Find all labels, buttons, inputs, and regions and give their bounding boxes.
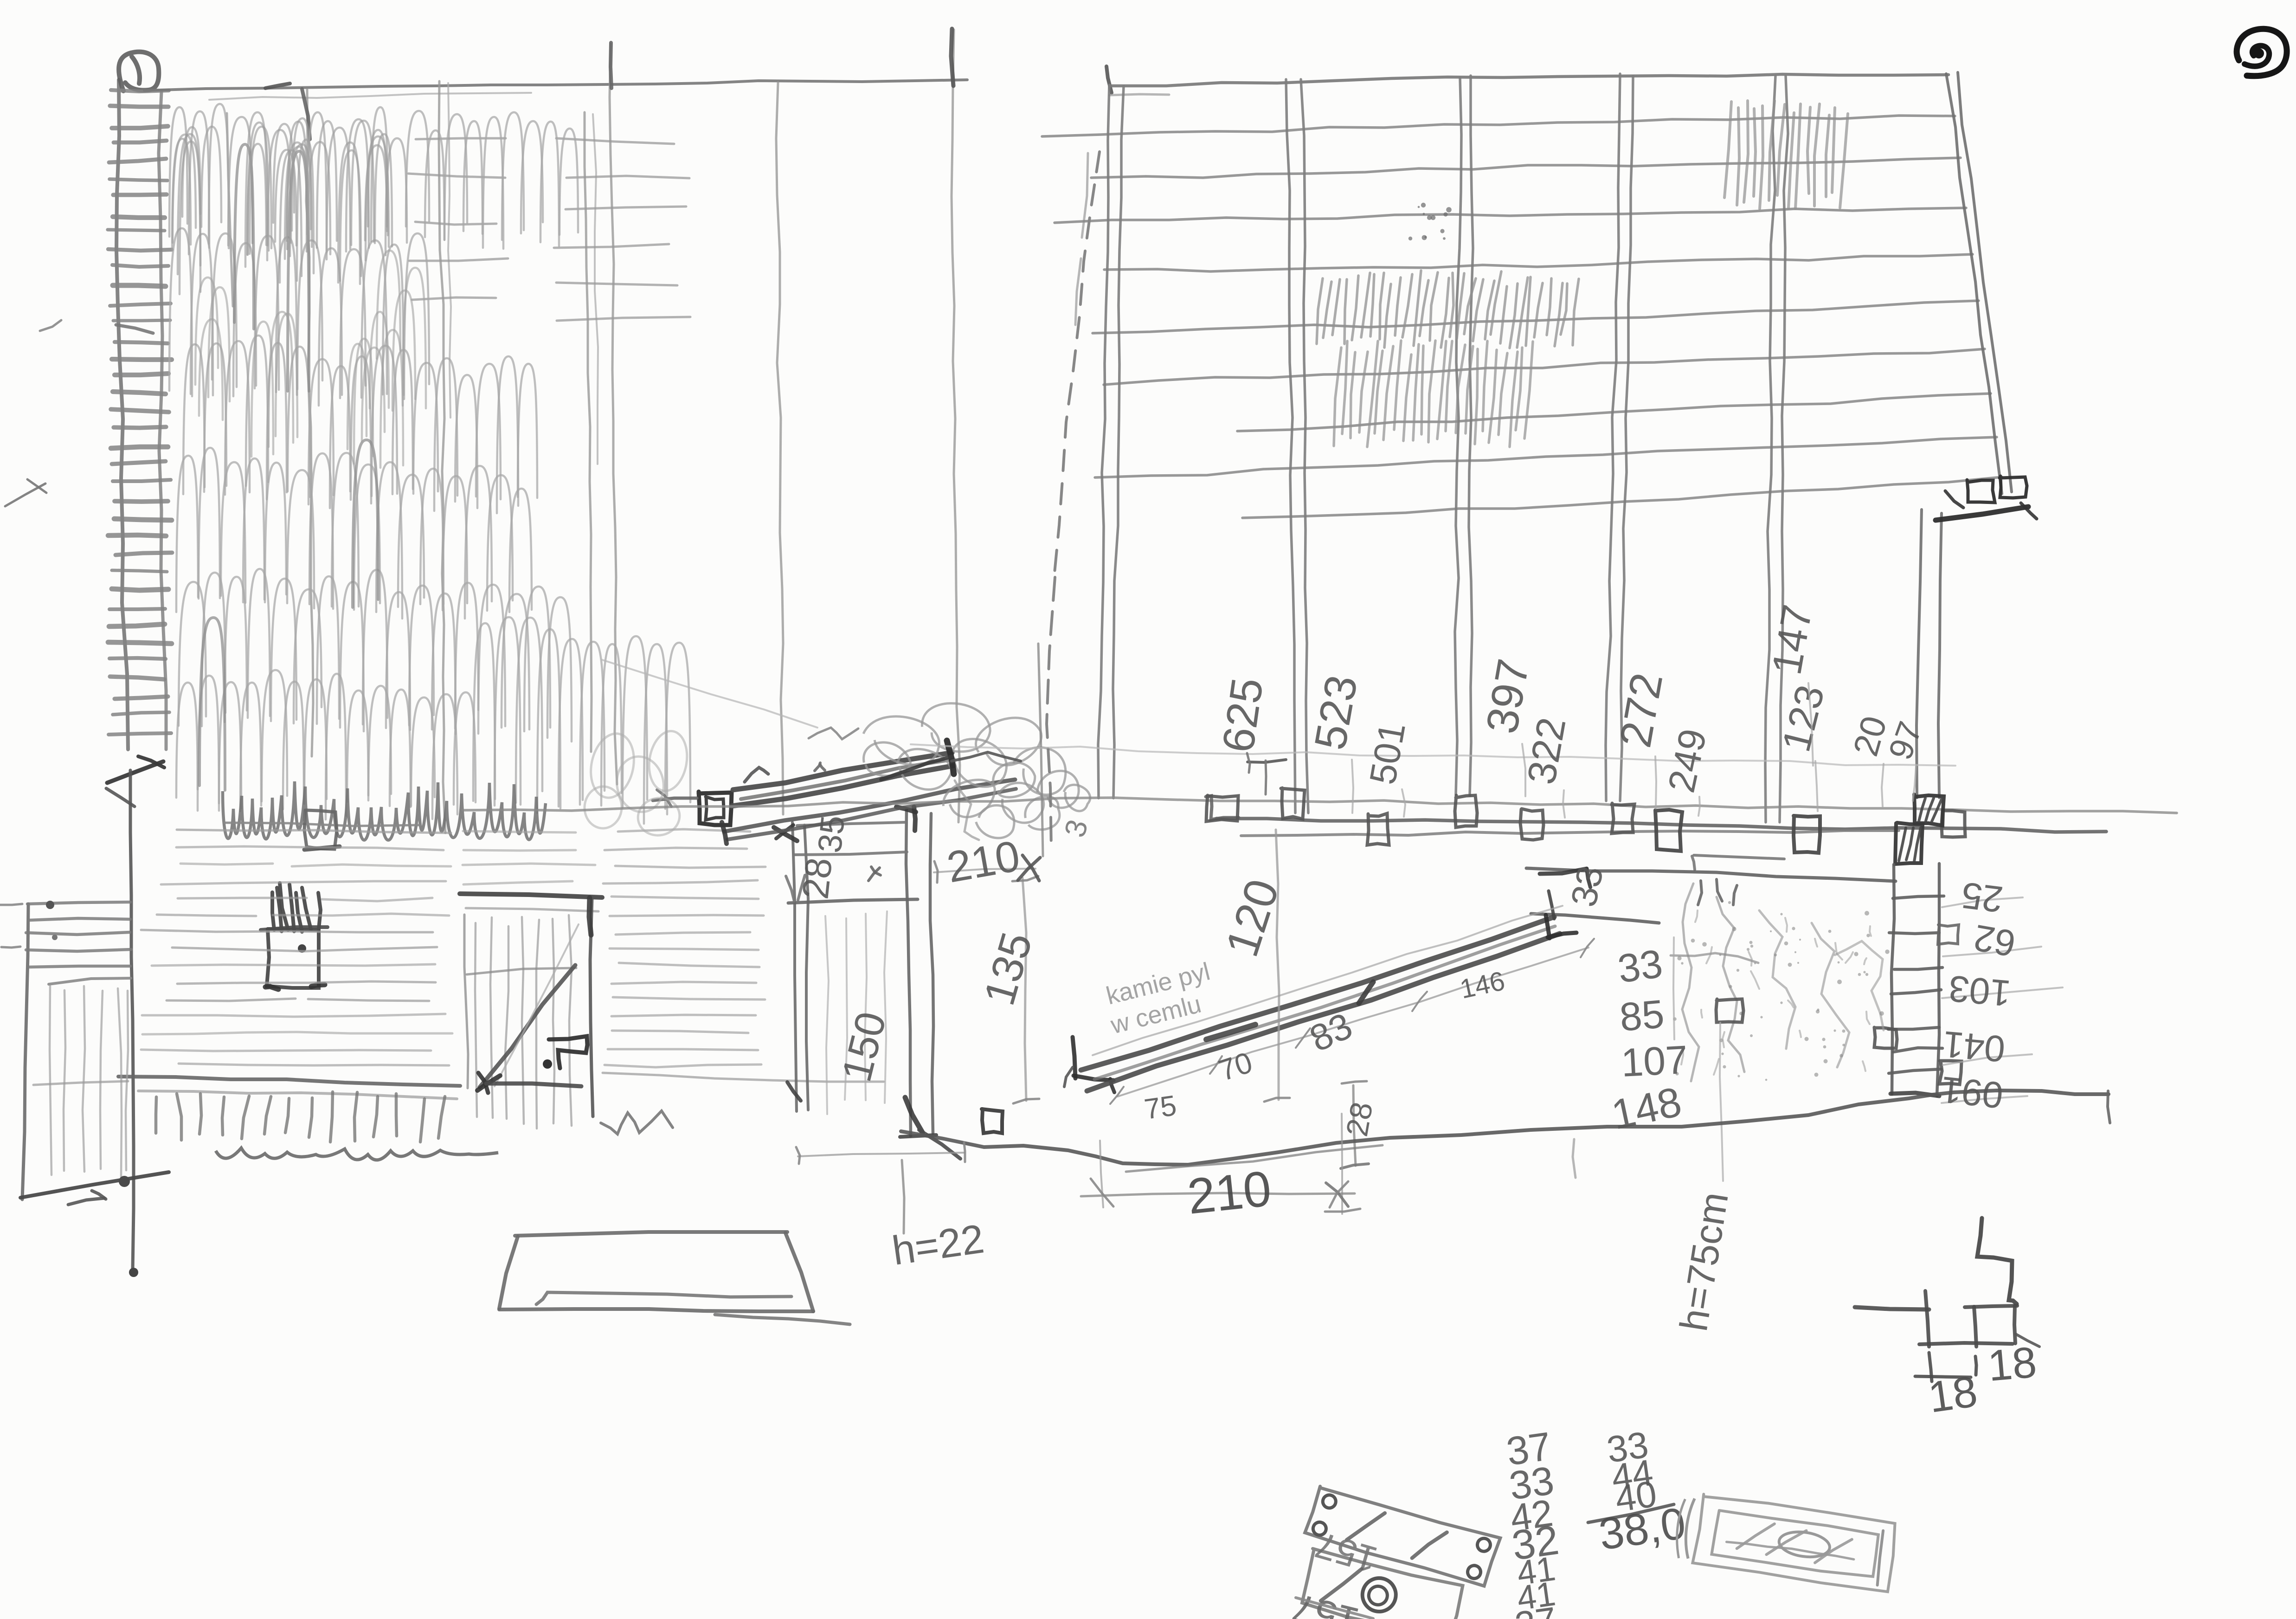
svg-text:62: 62 [1971,917,2019,965]
svg-text:28: 28 [794,856,840,901]
svg-text:33: 33 [1615,941,1665,991]
svg-text:103: 103 [1947,968,2013,1014]
svg-text:18: 18 [1925,1367,1980,1422]
svg-text:18: 18 [1986,1337,2039,1390]
svg-text:85: 85 [1618,992,1666,1040]
svg-text:107: 107 [1620,1038,1689,1085]
svg-text:33: 33 [1563,862,1611,910]
svg-text:041: 041 [1942,1023,2007,1070]
svg-text:625: 625 [1213,675,1273,755]
svg-text:28: 28 [1339,1099,1379,1139]
svg-text:75: 75 [1142,1090,1178,1126]
svg-text:210: 210 [1185,1160,1274,1225]
svg-text:25: 25 [1959,874,2005,920]
svg-text:091: 091 [1939,1069,2005,1116]
svg-text:35: 35 [811,814,852,855]
